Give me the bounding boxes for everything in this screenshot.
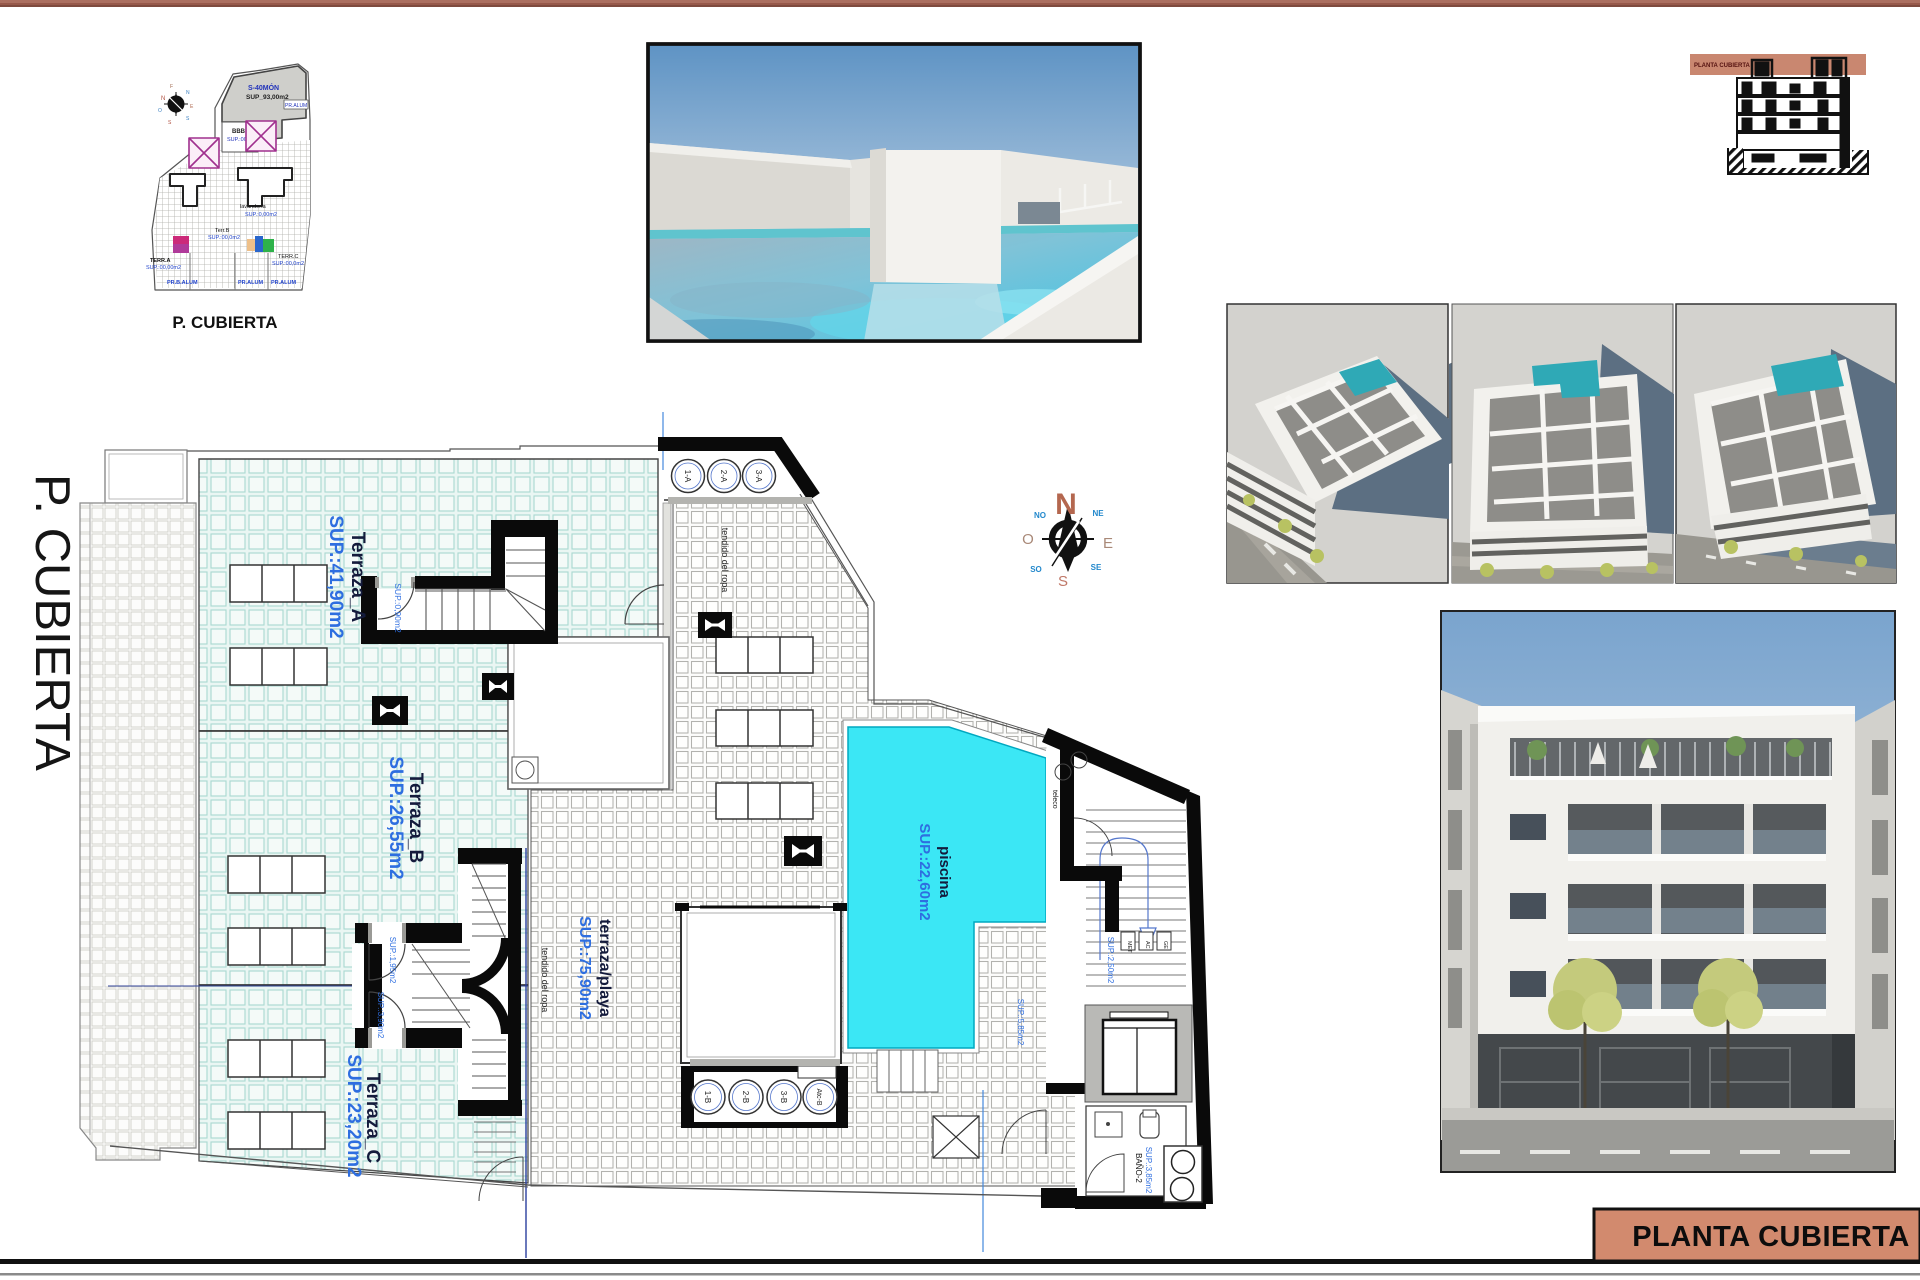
svg-text:NO: NO — [1034, 511, 1046, 520]
svg-text:3-A: 3-A — [754, 470, 763, 483]
svg-text:PLANTA CUBIERTA: PLANTA CUBIERTA — [1632, 1221, 1910, 1253]
svg-text:TERR.A: TERR.A — [150, 258, 171, 264]
svg-text:GE: GE — [1162, 941, 1168, 949]
svg-text:piscina: piscina — [936, 846, 953, 898]
svg-text:NE: NE — [1092, 509, 1104, 518]
svg-text:Terraza_C: Terraza_C — [362, 1073, 383, 1164]
svg-text:SUP.:26,55m2: SUP.:26,55m2 — [385, 756, 406, 879]
svg-text:PLANTA CUBIERTA: PLANTA CUBIERTA — [1694, 63, 1751, 69]
svg-text:PR.B.ALUM: PR.B.ALUM — [167, 280, 198, 286]
svg-text:SUP.:3,90m2: SUP.:3,90m2 — [376, 992, 385, 1039]
svg-text:PR.ALUM: PR.ALUM — [271, 280, 296, 286]
svg-text:SUP.:5,85m2: SUP.:5,85m2 — [1016, 999, 1025, 1046]
svg-text:SUP.:75,90m2: SUP.:75,90m2 — [576, 916, 593, 1020]
svg-text:E: E — [1103, 535, 1113, 552]
svg-text:P. CUBIERTA: P. CUBIERTA — [172, 313, 277, 332]
svg-text:SUP.:22,60m2: SUP.:22,60m2 — [916, 823, 933, 920]
svg-text:Terr.B: Terr.B — [215, 228, 230, 234]
svg-text:SUP.:2,50m2: SUP.:2,50m2 — [1106, 937, 1115, 984]
svg-text:BBB: BBB — [232, 129, 246, 135]
svg-text:lavandería: lavandería — [240, 204, 267, 210]
svg-text:PR.ALUM: PR.ALUM — [285, 103, 307, 109]
svg-text:O: O — [1022, 531, 1034, 548]
svg-text:Terraza_B: Terraza_B — [405, 773, 426, 863]
svg-text:PR.ALUM: PR.ALUM — [238, 280, 263, 286]
svg-text:SUP.:3,85m2: SUP.:3,85m2 — [1144, 1147, 1153, 1194]
svg-text:N: N — [161, 96, 165, 102]
svg-text:terraza/playa: terraza/playa — [596, 919, 613, 1017]
svg-text:3-B: 3-B — [779, 1091, 788, 1103]
svg-text:O: O — [158, 108, 162, 114]
svg-text:SO: SO — [1030, 565, 1042, 574]
svg-text:2-A: 2-A — [719, 470, 728, 483]
svg-text:teleco: teleco — [1051, 790, 1058, 809]
svg-text:N: N — [186, 90, 190, 96]
svg-text:Terraza_A: Terraza_A — [347, 532, 368, 623]
svg-text:SUP.:0,00m2: SUP.:0,00m2 — [245, 212, 277, 218]
svg-text:P. CUBIERTA: P. CUBIERTA — [25, 474, 79, 771]
svg-text:SUP.:00,00m2: SUP.:00,00m2 — [146, 265, 181, 271]
svg-text:SUP.:00,0m2: SUP.:00,0m2 — [272, 261, 304, 267]
svg-text:F: F — [170, 84, 173, 90]
svg-text:S: S — [1058, 573, 1068, 590]
svg-text:1-A: 1-A — [683, 470, 692, 483]
svg-text:Atc-B: Atc-B — [815, 1088, 822, 1105]
svg-text:SUP.:23,20m2: SUP.:23,20m2 — [343, 1054, 364, 1177]
svg-text:BAÑO-2: BAÑO-2 — [1134, 1153, 1143, 1183]
svg-text:SUP.:1,95m2: SUP.:1,95m2 — [388, 937, 397, 984]
svg-text:SUP.:41,90m2: SUP.:41,90m2 — [325, 515, 346, 638]
svg-text:SUP_93,00m2: SUP_93,00m2 — [246, 94, 289, 101]
svg-text:1-B: 1-B — [703, 1091, 712, 1103]
svg-text:SE: SE — [1091, 563, 1102, 572]
svg-text:TERR.C: TERR.C — [278, 254, 299, 260]
svg-text:SUP.:0,90m2: SUP.:0,90m2 — [393, 583, 403, 633]
svg-text:tendido del ropa: tendido del ropa — [540, 948, 550, 1013]
svg-text:MET: MET — [1126, 941, 1132, 953]
svg-text:tendido del ropa: tendido del ropa — [720, 528, 730, 593]
svg-text:N: N — [1055, 488, 1077, 521]
svg-text:S-40MÓN: S-40MÓN — [248, 83, 279, 92]
svg-text:2-B: 2-B — [741, 1091, 750, 1103]
svg-text:AC: AC — [1144, 941, 1150, 949]
svg-text:SUP.:00,0m2: SUP.:00,0m2 — [208, 235, 240, 241]
